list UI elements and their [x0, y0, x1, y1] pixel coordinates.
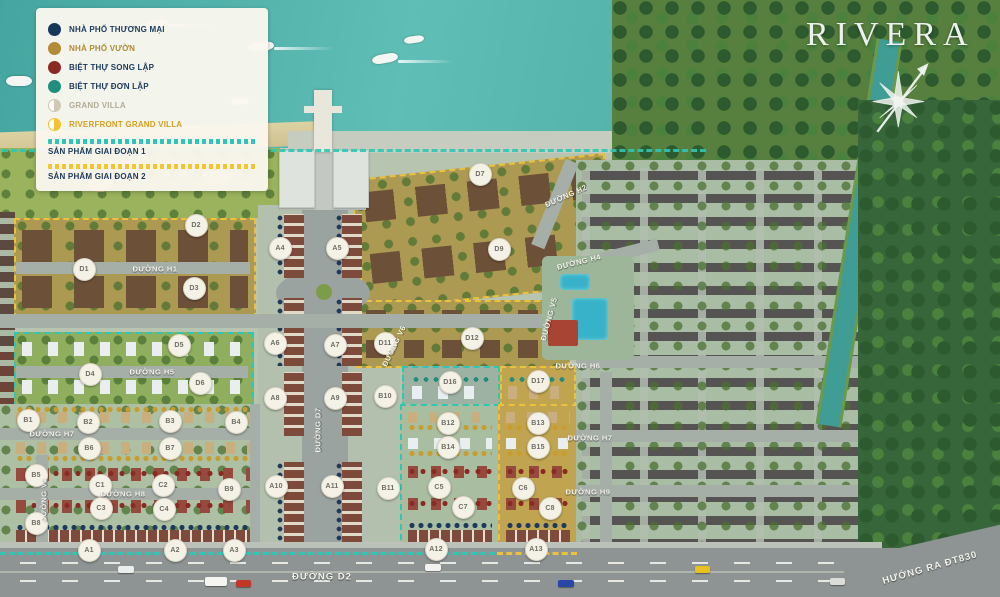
compass-icon	[868, 56, 938, 140]
legend-card: NHÀ PHỐ THƯƠNG MẠINHÀ PHỐ VƯỜNBIỆT THỰ S…	[36, 8, 268, 191]
legend-item: BIỆT THỰ ĐƠN LẬP	[48, 80, 256, 93]
road-label: ĐƯỜNG H6	[556, 362, 601, 371]
legend-items: NHÀ PHỐ THƯƠNG MẠINHÀ PHỐ VƯỜNBIỆT THỰ S…	[48, 23, 256, 131]
legend-color-dot	[48, 42, 61, 55]
legend-item: NHÀ PHỐ THƯƠNG MẠI	[48, 23, 256, 36]
legend-color-dot	[48, 23, 61, 36]
road-label: ĐƯỜNG V5	[539, 296, 559, 341]
legend-color-dot	[48, 80, 61, 93]
legend-item-label: GRAND VILLA	[69, 101, 126, 111]
legend-item: NHÀ PHỐ VƯỜN	[48, 42, 256, 55]
phase-dash-swatch	[48, 139, 256, 144]
legend-item-label: RIVERFRONT GRAND VILLA	[69, 120, 182, 130]
legend-item-label: BIỆT THỰ SONG LẬP	[69, 63, 154, 73]
road-label: ĐƯỜNG H8	[101, 490, 146, 499]
road-label: ĐƯỜNG V6	[380, 324, 408, 368]
road-label: ĐƯỜNG H1	[133, 265, 178, 274]
phase-label: SẢN PHẨM GIAI ĐOẠN 1	[48, 147, 256, 156]
road-label: ĐƯỜNG V1	[40, 478, 49, 523]
legend-color-dot	[48, 118, 61, 131]
road-label: ĐƯỜNG H2	[544, 183, 589, 210]
road-label: ĐƯỜNG D2	[292, 572, 352, 583]
road-label: ĐƯỜNG D7	[314, 408, 323, 453]
legend-item: RIVERFRONT GRAND VILLA	[48, 118, 256, 131]
legend-phases: SẢN PHẨM GIAI ĐOẠN 1SẢN PHẨM GIAI ĐOẠN 2	[48, 139, 256, 181]
road-label: HƯỚNG RA ĐT830	[881, 549, 978, 587]
legend-color-dot	[48, 61, 61, 74]
road-label: ĐƯỜNG H7	[30, 430, 75, 439]
legend-item: BIỆT THỰ SONG LẬP	[48, 61, 256, 74]
legend-item: GRAND VILLA	[48, 99, 256, 112]
road-label: ĐƯỜNG H4	[556, 252, 602, 272]
masterplan-canvas: D1D2D3D4D5D6D7D9D11D12D16D17A1A2A3A4A5A6…	[0, 0, 1000, 597]
phase-label: SẢN PHẨM GIAI ĐOẠN 2	[48, 172, 256, 181]
road-label: ĐƯỜNG H9	[566, 488, 611, 497]
legend-color-dot	[48, 99, 61, 112]
road-label: ĐƯỜNG H7	[568, 434, 613, 443]
legend-item-label: NHÀ PHỐ THƯƠNG MẠI	[69, 25, 165, 35]
legend-item-label: NHÀ PHỐ VƯỜN	[69, 44, 135, 54]
phase-dash-swatch	[48, 164, 256, 169]
legend-item-label: BIỆT THỰ ĐƠN LẬP	[69, 82, 149, 92]
project-title: RIVERA	[806, 16, 1000, 54]
road-label: ĐƯỜNG H5	[130, 368, 175, 377]
